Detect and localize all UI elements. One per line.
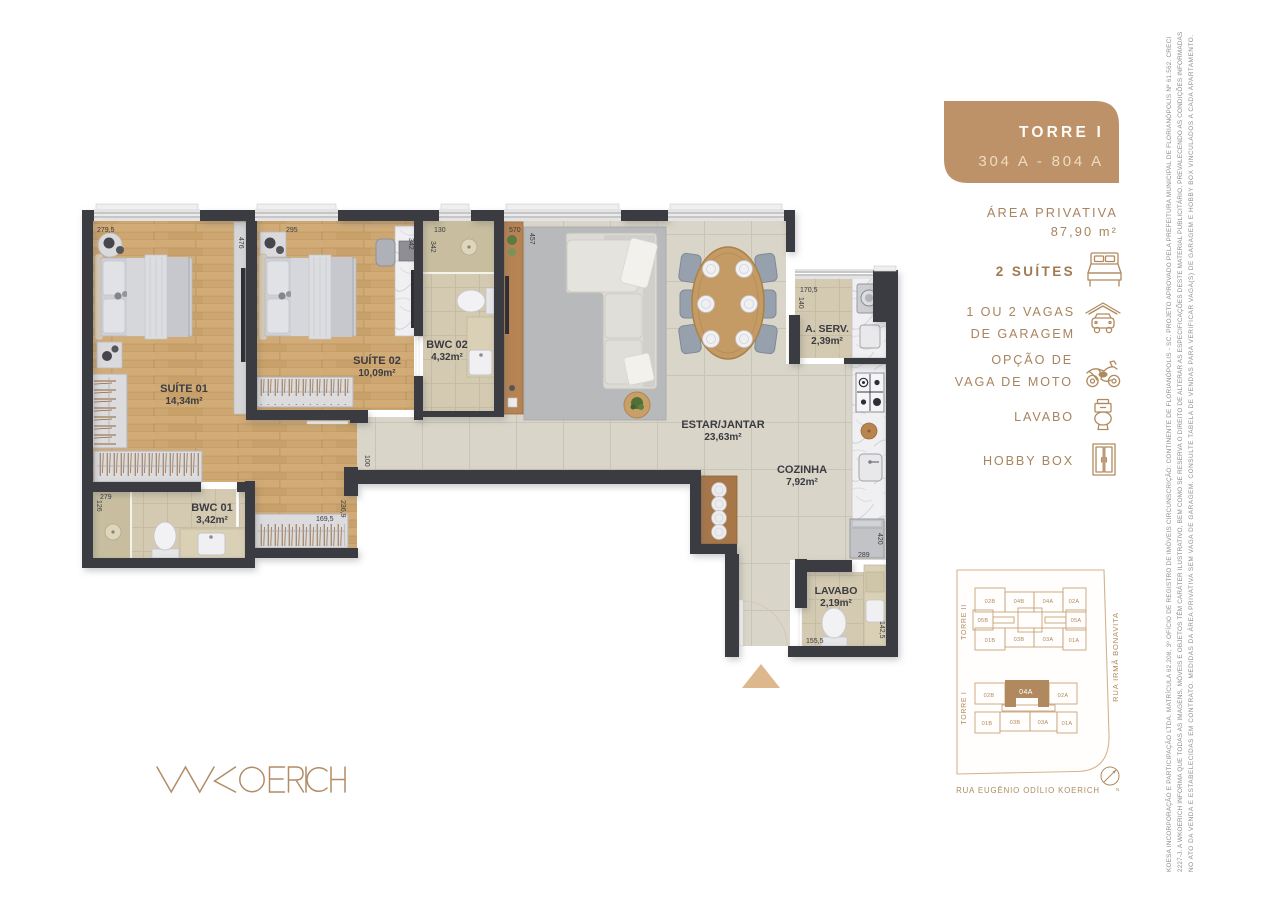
- svg-text:TORRE II: TORRE II: [961, 604, 968, 640]
- svg-text:05B: 05B: [978, 618, 989, 624]
- svg-text:304 A - 804 A: 304 A - 804 A: [978, 153, 1104, 170]
- svg-text:126: 126: [95, 500, 102, 512]
- svg-text:02A: 02A: [1058, 693, 1069, 699]
- svg-text:COZINHA: COZINHA: [777, 464, 827, 476]
- svg-text:87,90 m²: 87,90 m²: [1051, 224, 1118, 239]
- svg-text:RUA EUGÊNIO ODÍLIO KOERICH: RUA EUGÊNIO ODÍLIO KOERICH: [956, 786, 1100, 795]
- svg-text:ÁREA PRIVATIVA: ÁREA PRIVATIVA: [987, 205, 1118, 220]
- svg-text:LAVABO: LAVABO: [815, 585, 858, 597]
- svg-text:TORRE I: TORRE I: [961, 691, 968, 724]
- svg-text:02B: 02B: [984, 693, 995, 699]
- svg-text:342: 342: [429, 241, 436, 253]
- svg-text:3,42m²: 3,42m²: [196, 515, 228, 526]
- svg-text:23,63m²: 23,63m²: [704, 432, 742, 443]
- svg-text:7,92m²: 7,92m²: [786, 477, 818, 488]
- svg-text:02B: 02B: [985, 599, 996, 605]
- svg-text:N: N: [1116, 787, 1119, 792]
- svg-text:570: 570: [509, 227, 521, 234]
- svg-text:476: 476: [237, 237, 244, 249]
- svg-text:289: 289: [858, 552, 870, 559]
- svg-text:169,5: 169,5: [316, 516, 334, 523]
- svg-text:04A: 04A: [1019, 689, 1033, 696]
- svg-text:03B: 03B: [1010, 720, 1021, 726]
- svg-text:SUÍTE 02: SUÍTE 02: [353, 354, 401, 367]
- svg-text:VAGA DE MOTO: VAGA DE MOTO: [955, 375, 1073, 389]
- svg-text:NO ATO DA VENDA E ESTABELECIDA: NO ATO DA VENDA E ESTABELECIDAS EM CONTR…: [1186, 34, 1195, 872]
- svg-text:420: 420: [876, 533, 883, 545]
- svg-text:BWC 02: BWC 02: [426, 339, 468, 351]
- svg-text:342: 342: [407, 238, 414, 250]
- svg-text:279,5: 279,5: [97, 227, 115, 234]
- svg-text:155,5: 155,5: [806, 638, 824, 645]
- svg-text:100: 100: [363, 455, 370, 467]
- svg-text:OPÇÃO DE: OPÇÃO DE: [991, 353, 1073, 367]
- svg-text:BWC 01: BWC 01: [191, 502, 233, 514]
- svg-text:02A: 02A: [1069, 599, 1080, 605]
- svg-text:03B: 03B: [1014, 637, 1025, 643]
- svg-text:140: 140: [797, 297, 804, 309]
- svg-text:TORRE I: TORRE I: [1019, 124, 1104, 141]
- svg-text:SUÍTE 01: SUÍTE 01: [160, 382, 208, 395]
- svg-text:1 OU 2 VAGAS: 1 OU 2 VAGAS: [966, 305, 1075, 319]
- svg-text:2,39m²: 2,39m²: [811, 336, 843, 347]
- svg-text:04A: 04A: [1043, 599, 1054, 605]
- svg-text:14,34m²: 14,34m²: [165, 396, 203, 407]
- svg-text:2 SUÍTES: 2 SUÍTES: [996, 264, 1075, 279]
- svg-text:RUA IRMÃ BONAVITA: RUA IRMÃ BONAVITA: [1111, 612, 1120, 702]
- svg-text:HOBBY BOX: HOBBY BOX: [983, 454, 1074, 468]
- svg-text:01B: 01B: [982, 721, 993, 727]
- svg-text:05A: 05A: [1071, 618, 1082, 624]
- svg-text:A. SERV.: A. SERV.: [805, 323, 849, 335]
- svg-text:01B: 01B: [985, 638, 996, 644]
- svg-text:295: 295: [286, 227, 298, 234]
- svg-text:03A: 03A: [1043, 637, 1054, 643]
- svg-text:10,09m²: 10,09m²: [358, 368, 396, 379]
- svg-text:03A: 03A: [1038, 720, 1049, 726]
- svg-text:142,5: 142,5: [878, 621, 885, 639]
- svg-text:01A: 01A: [1062, 721, 1073, 727]
- svg-text:170,5: 170,5: [800, 287, 818, 294]
- svg-text:2227-J. A WKOERICH INFORMA QUE: 2227-J. A WKOERICH INFORMA QUE TODAS AS …: [1175, 32, 1184, 872]
- svg-text:04B: 04B: [1014, 599, 1025, 605]
- svg-text:LAVABO: LAVABO: [1014, 410, 1074, 424]
- svg-text:130: 130: [434, 227, 446, 234]
- svg-text:ESTAR/JANTAR: ESTAR/JANTAR: [681, 419, 764, 431]
- svg-text:01A: 01A: [1069, 638, 1080, 644]
- svg-text:KOESA INCORPORAÇÃO E PARTICIPA: KOESA INCORPORAÇÃO E PARTICIPAÇÃO LTDA. …: [1164, 37, 1173, 872]
- svg-text:2,19m²: 2,19m²: [820, 598, 852, 609]
- svg-text:457: 457: [528, 233, 535, 245]
- svg-text:236,9: 236,9: [339, 500, 346, 518]
- svg-text:4,32m²: 4,32m²: [431, 352, 463, 363]
- svg-text:DE GARAGEM: DE GARAGEM: [971, 327, 1075, 341]
